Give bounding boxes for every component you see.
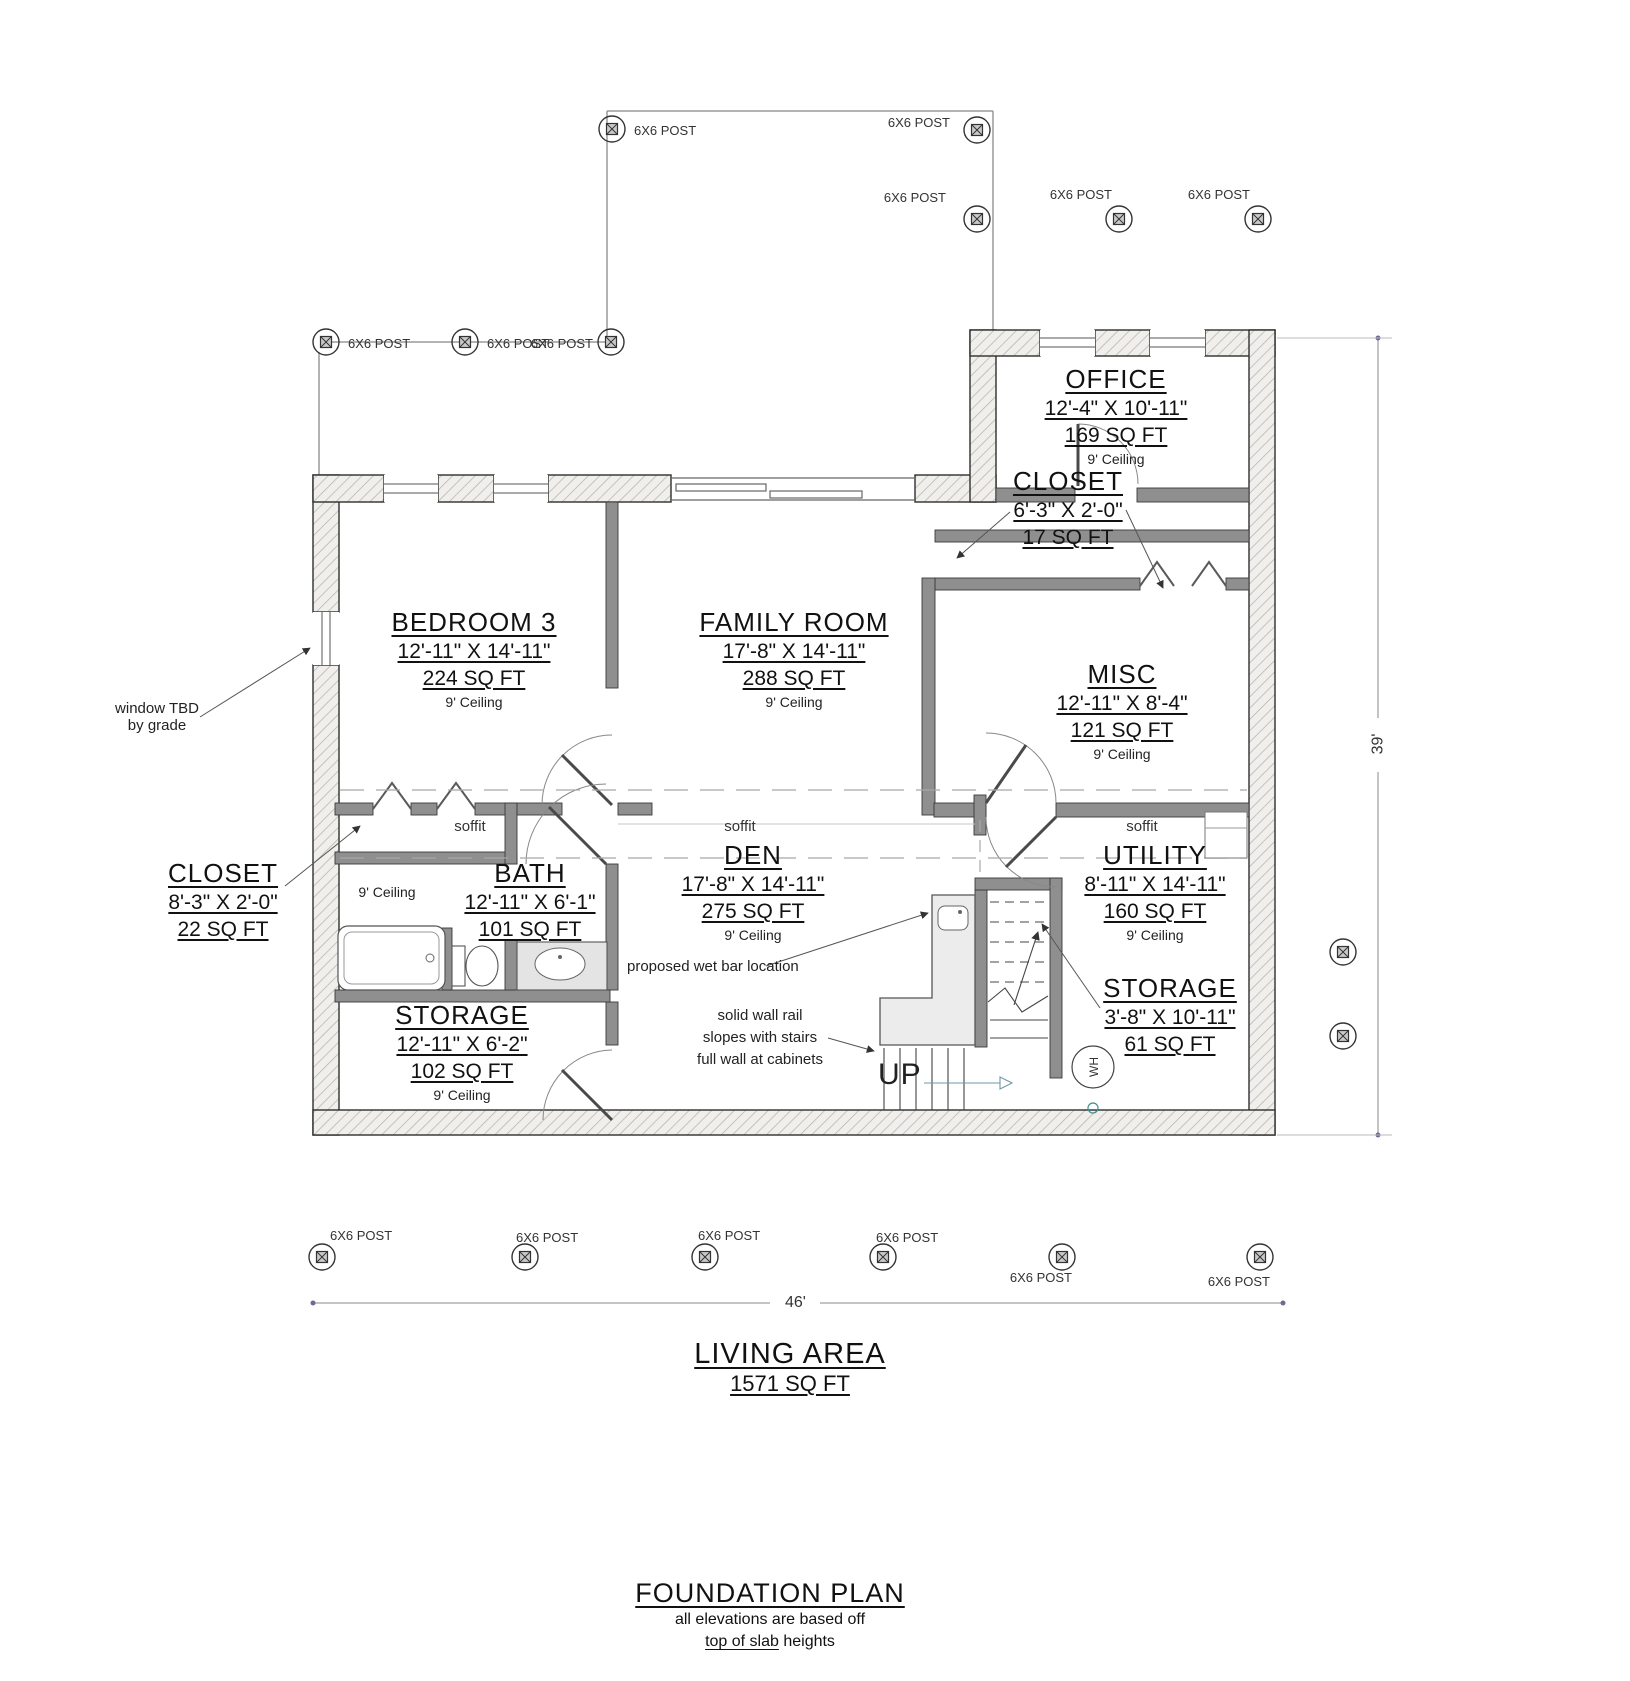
room-label-den: DEN 17'-8" X 14'-11" 275 SQ FT 9' Ceilin…: [682, 840, 825, 946]
plan-title: FOUNDATION PLAN: [635, 1578, 905, 1609]
post-symbol: 6X6 POST: [309, 1228, 392, 1270]
post-label: 6X6 POST: [876, 1230, 938, 1245]
post-label: 6X6 POST: [634, 123, 696, 138]
room-label-storage-w: STORAGE 12'-11" X 6'-2" 102 SQ FT 9' Cei…: [395, 1000, 529, 1106]
soffit-label-3: soffit: [1126, 818, 1157, 835]
post-label: 6X6 POST: [330, 1228, 392, 1243]
post-symbol: 6X6 POST: [1010, 1244, 1075, 1285]
rail-note: solid wall rail slopes with stairs full …: [697, 1005, 823, 1071]
post-label: 6X6 POST: [348, 336, 410, 351]
room-label-closet-ne: CLOSET 6'-3" X 2'-0" 17 SQ FT: [1013, 466, 1123, 551]
living-area-block: LIVING AREA 1571 SQ FT: [694, 1338, 886, 1397]
deck-outline: [319, 111, 993, 475]
post-symbol: 6X6 POST: [884, 190, 990, 232]
wet-bar: [880, 895, 975, 1045]
post-symbol: 6X6 POST: [1188, 187, 1271, 232]
wet-bar-note: proposed wet bar location: [627, 958, 799, 975]
up-label: UP: [878, 1058, 922, 1092]
plan-note-2: top of slab heights: [635, 1631, 905, 1653]
dimension-width: 46': [785, 1294, 806, 1312]
post-symbol: 6X6 POST: [313, 329, 410, 355]
post-symbol: 6X6 POST: [599, 116, 696, 142]
soffit-label-1: soffit: [454, 818, 485, 835]
post-symbol: 6X6 POST: [888, 115, 990, 143]
window-note: window TBD by grade: [115, 700, 199, 734]
room-label-bath: BATH 12'-11" X 6'-1" 101 SQ FT: [464, 858, 595, 943]
post-label: 6X6 POST: [698, 1228, 760, 1243]
post-label: 6X6 POST: [1010, 1270, 1072, 1285]
post-symbol: 6X6 POST: [512, 1230, 578, 1270]
foundation-plan-canvas: WH 6X6 POST6X6 POST6X6 POST6X6 POST6X6 P…: [0, 0, 1630, 1681]
room-label-misc: MISC 12'-11" X 8'-4" 121 SQ FT 9' Ceilin…: [1056, 659, 1187, 765]
ceiling-note: 9' Ceiling: [358, 884, 415, 900]
dimension-height: 39': [1369, 734, 1387, 755]
post-symbol: 6X6 POST: [1050, 187, 1132, 232]
room-label-office: OFFICE 12'-4" X 10'-11" 169 SQ FT 9' Cei…: [1045, 364, 1188, 470]
post-symbol: 6X6 POST: [870, 1230, 938, 1270]
room-label-utility: UTILITY 8'-11" X 14'-11" 160 SQ FT 9' Ce…: [1084, 840, 1225, 946]
post-symbol: 6X6 POST: [531, 329, 624, 355]
post-label: 6X6 POST: [888, 115, 950, 130]
room-label-bedroom3: BEDROOM 3 12'-11" X 14'-11" 224 SQ FT 9'…: [391, 607, 556, 713]
room-label-storage-e: STORAGE 3'-8" X 10'-11" 61 SQ FT: [1103, 973, 1237, 1058]
post-label: 6X6 POST: [531, 336, 593, 351]
post-symbol: 6X6 POST: [1208, 1244, 1273, 1289]
post-label: 6X6 POST: [516, 1230, 578, 1245]
living-area-label: LIVING AREA: [694, 1338, 886, 1371]
soffit-label-2: soffit: [724, 818, 755, 835]
room-label-family-room: FAMILY ROOM 17'-8" X 14'-11" 288 SQ FT 9…: [699, 607, 888, 713]
post-label: 6X6 POST: [1188, 187, 1250, 202]
post-label: 6X6 POST: [1208, 1274, 1270, 1289]
water-heater-label: WH: [1087, 1057, 1101, 1077]
post-label: 6X6 POST: [884, 190, 946, 205]
room-label-closet-w: CLOSET 8'-3" X 2'-0" 22 SQ FT: [168, 858, 278, 943]
plan-note-1: all elevations are based off: [635, 1609, 905, 1631]
living-area-value: 1571 SQ FT: [694, 1371, 886, 1397]
post-symbol: [1330, 939, 1356, 965]
post-symbol: 6X6 POST: [692, 1228, 760, 1270]
post-symbol: [1330, 1023, 1356, 1049]
post-label: 6X6 POST: [1050, 187, 1112, 202]
sliding-door: [671, 478, 915, 500]
plan-title-block: FOUNDATION PLAN all elevations are based…: [635, 1578, 905, 1653]
